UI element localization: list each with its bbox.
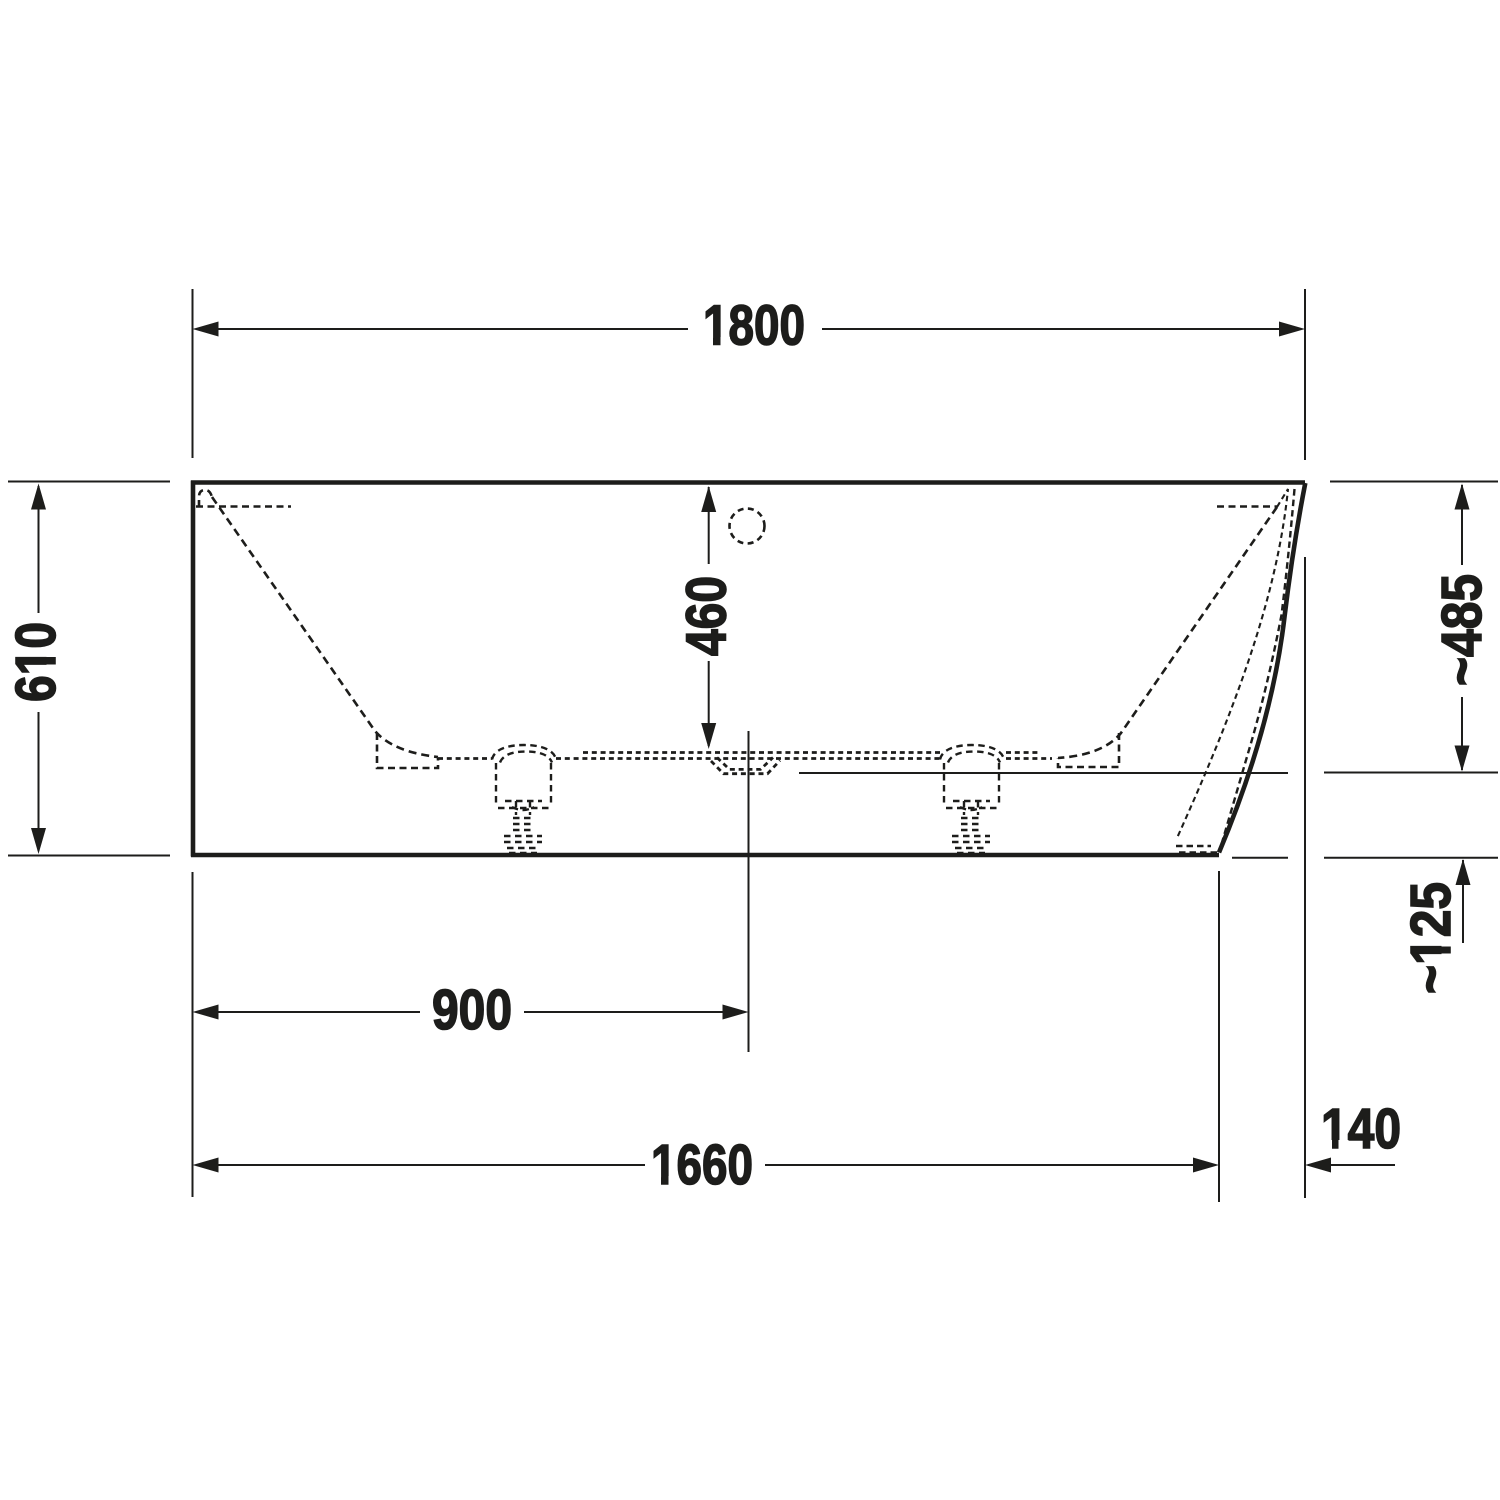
svg-text:460: 460 [675, 576, 739, 656]
svg-text:1660: 1660 [651, 1133, 753, 1197]
svg-text:900: 900 [432, 978, 512, 1042]
svg-text:1800: 1800 [703, 294, 805, 358]
svg-text:140: 140 [1321, 1097, 1401, 1161]
svg-text:~125: ~125 [1399, 882, 1463, 994]
svg-text:~485: ~485 [1430, 574, 1494, 686]
svg-text:610: 610 [4, 622, 68, 702]
